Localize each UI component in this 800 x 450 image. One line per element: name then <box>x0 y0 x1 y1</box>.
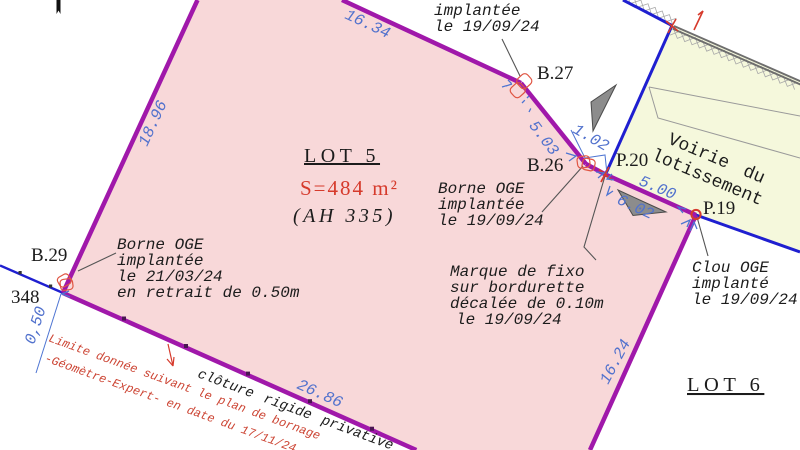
svg-text:S=484 m²: S=484 m² <box>300 176 399 200</box>
svg-text:P.19: P.19 <box>703 198 735 219</box>
svg-text:B.29: B.29 <box>31 245 67 266</box>
svg-text:P.20: P.20 <box>616 150 648 171</box>
svg-text:LOT 5: LOT 5 <box>304 145 380 167</box>
svg-text:le 19/09/24: le 19/09/24 <box>438 212 544 230</box>
svg-text:en retrait de 0.50m: en retrait de 0.50m <box>117 284 300 302</box>
svg-text:LOT 6: LOT 6 <box>687 374 764 396</box>
svg-text:(AH 335): (AH 335) <box>293 205 396 227</box>
svg-text:B.27: B.27 <box>537 63 573 84</box>
svg-text:348: 348 <box>11 287 40 308</box>
svg-text:le 19/09/24: le 19/09/24 <box>434 18 540 36</box>
svg-text:B.26: B.26 <box>527 155 563 176</box>
svg-text:le 19/09/24: le 19/09/24 <box>692 291 798 309</box>
svg-text:le 19/09/24: le 19/09/24 <box>456 311 562 329</box>
